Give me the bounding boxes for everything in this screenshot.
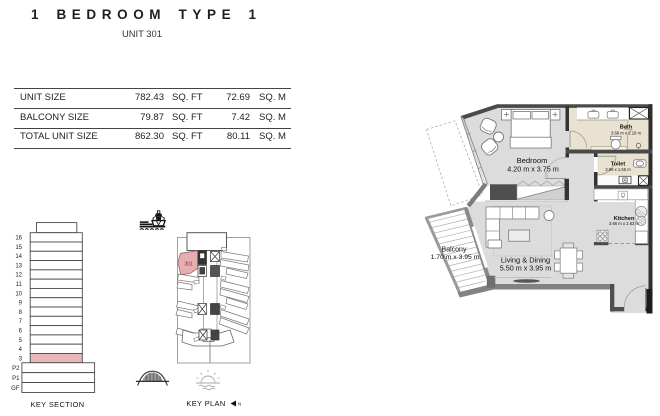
svg-text:16: 16 [15, 236, 22, 242]
svg-text:P2: P2 [12, 366, 20, 372]
svg-text:3: 3 [19, 356, 23, 362]
svg-text:13: 13 [15, 263, 22, 269]
svg-text:N: N [238, 402, 241, 407]
svg-text:1.70 m x 3.95 m: 1.70 m x 3.95 m [431, 254, 480, 261]
svg-text:P1: P1 [12, 376, 20, 382]
svg-text:Balcony: Balcony [442, 247, 467, 254]
svg-text:3.66 m x 2.16 m: 3.66 m x 2.16 m [611, 131, 642, 136]
svg-text:2.69 x 1.55 m: 2.69 x 1.55 m [605, 167, 631, 172]
svg-text:GF: GF [11, 386, 20, 392]
svg-text:8: 8 [19, 310, 23, 316]
svg-text:4.20 m x 3.75 m: 4.20 m x 3.75 m [507, 165, 559, 174]
svg-text:10: 10 [15, 291, 22, 297]
svg-text:12: 12 [15, 273, 22, 279]
svg-text:301: 301 [185, 262, 194, 268]
svg-text:6: 6 [19, 329, 23, 335]
svg-text:9: 9 [19, 301, 23, 307]
svg-text:14: 14 [15, 254, 22, 260]
svg-text:7: 7 [19, 319, 23, 325]
svg-text:11: 11 [16, 282, 23, 288]
svg-text:4: 4 [19, 347, 23, 353]
svg-text:KEY SECTION: KEY SECTION [31, 400, 85, 409]
svg-text:5: 5 [19, 338, 23, 344]
svg-text:5.50 m x 3.95 m: 5.50 m x 3.95 m [500, 264, 552, 273]
svg-text:KEY PLAN: KEY PLAN [186, 399, 225, 408]
svg-text:3.66 m x 2.63 m: 3.66 m x 2.63 m [609, 221, 640, 226]
svg-text:15: 15 [15, 245, 22, 251]
